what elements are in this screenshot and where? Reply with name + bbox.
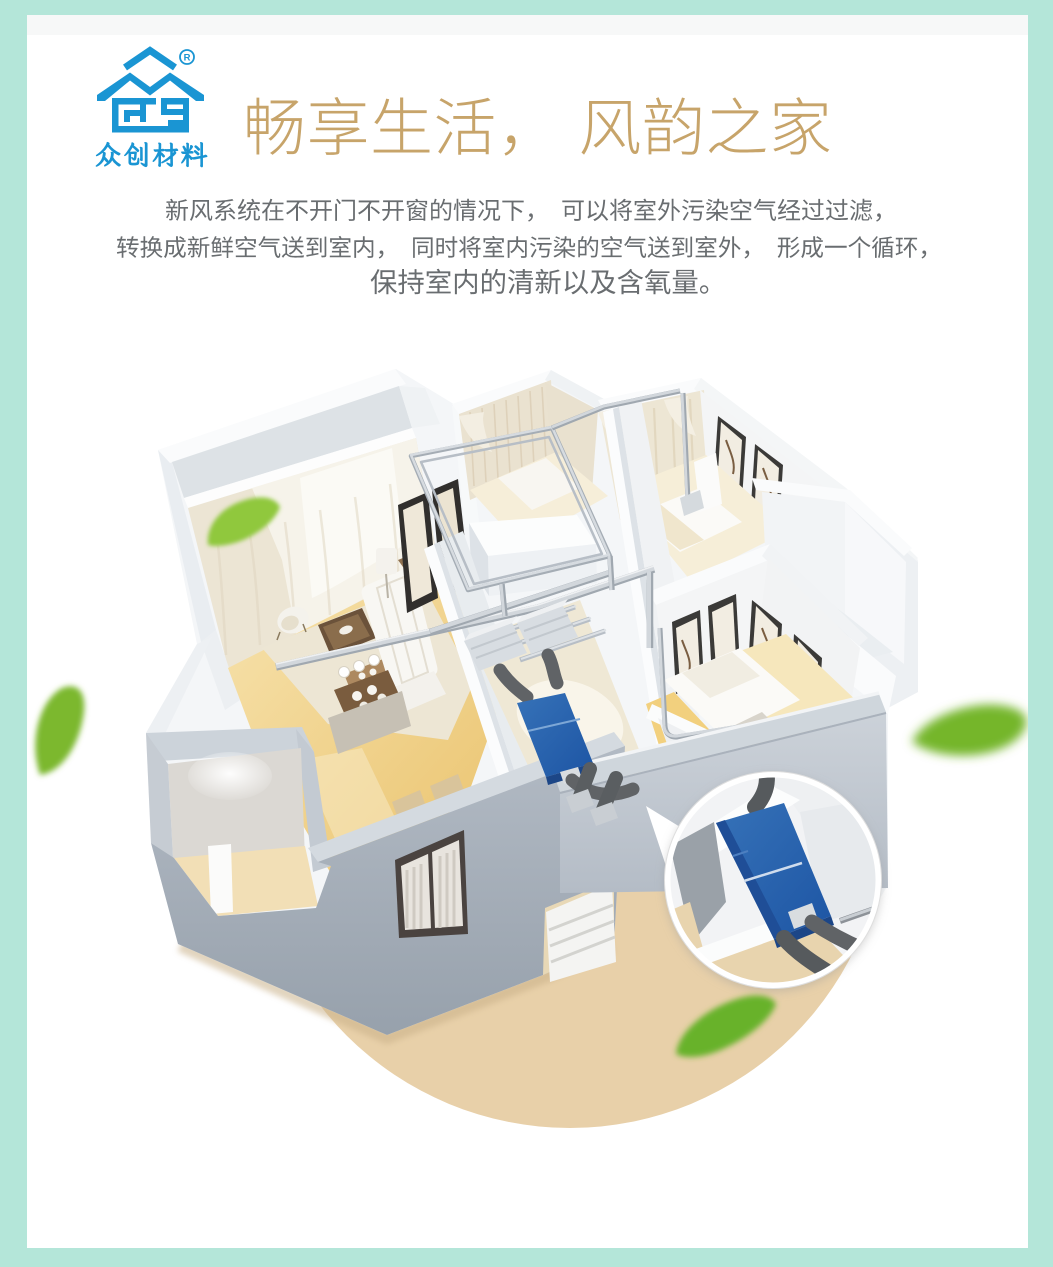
svg-text:R: R bbox=[184, 53, 191, 64]
